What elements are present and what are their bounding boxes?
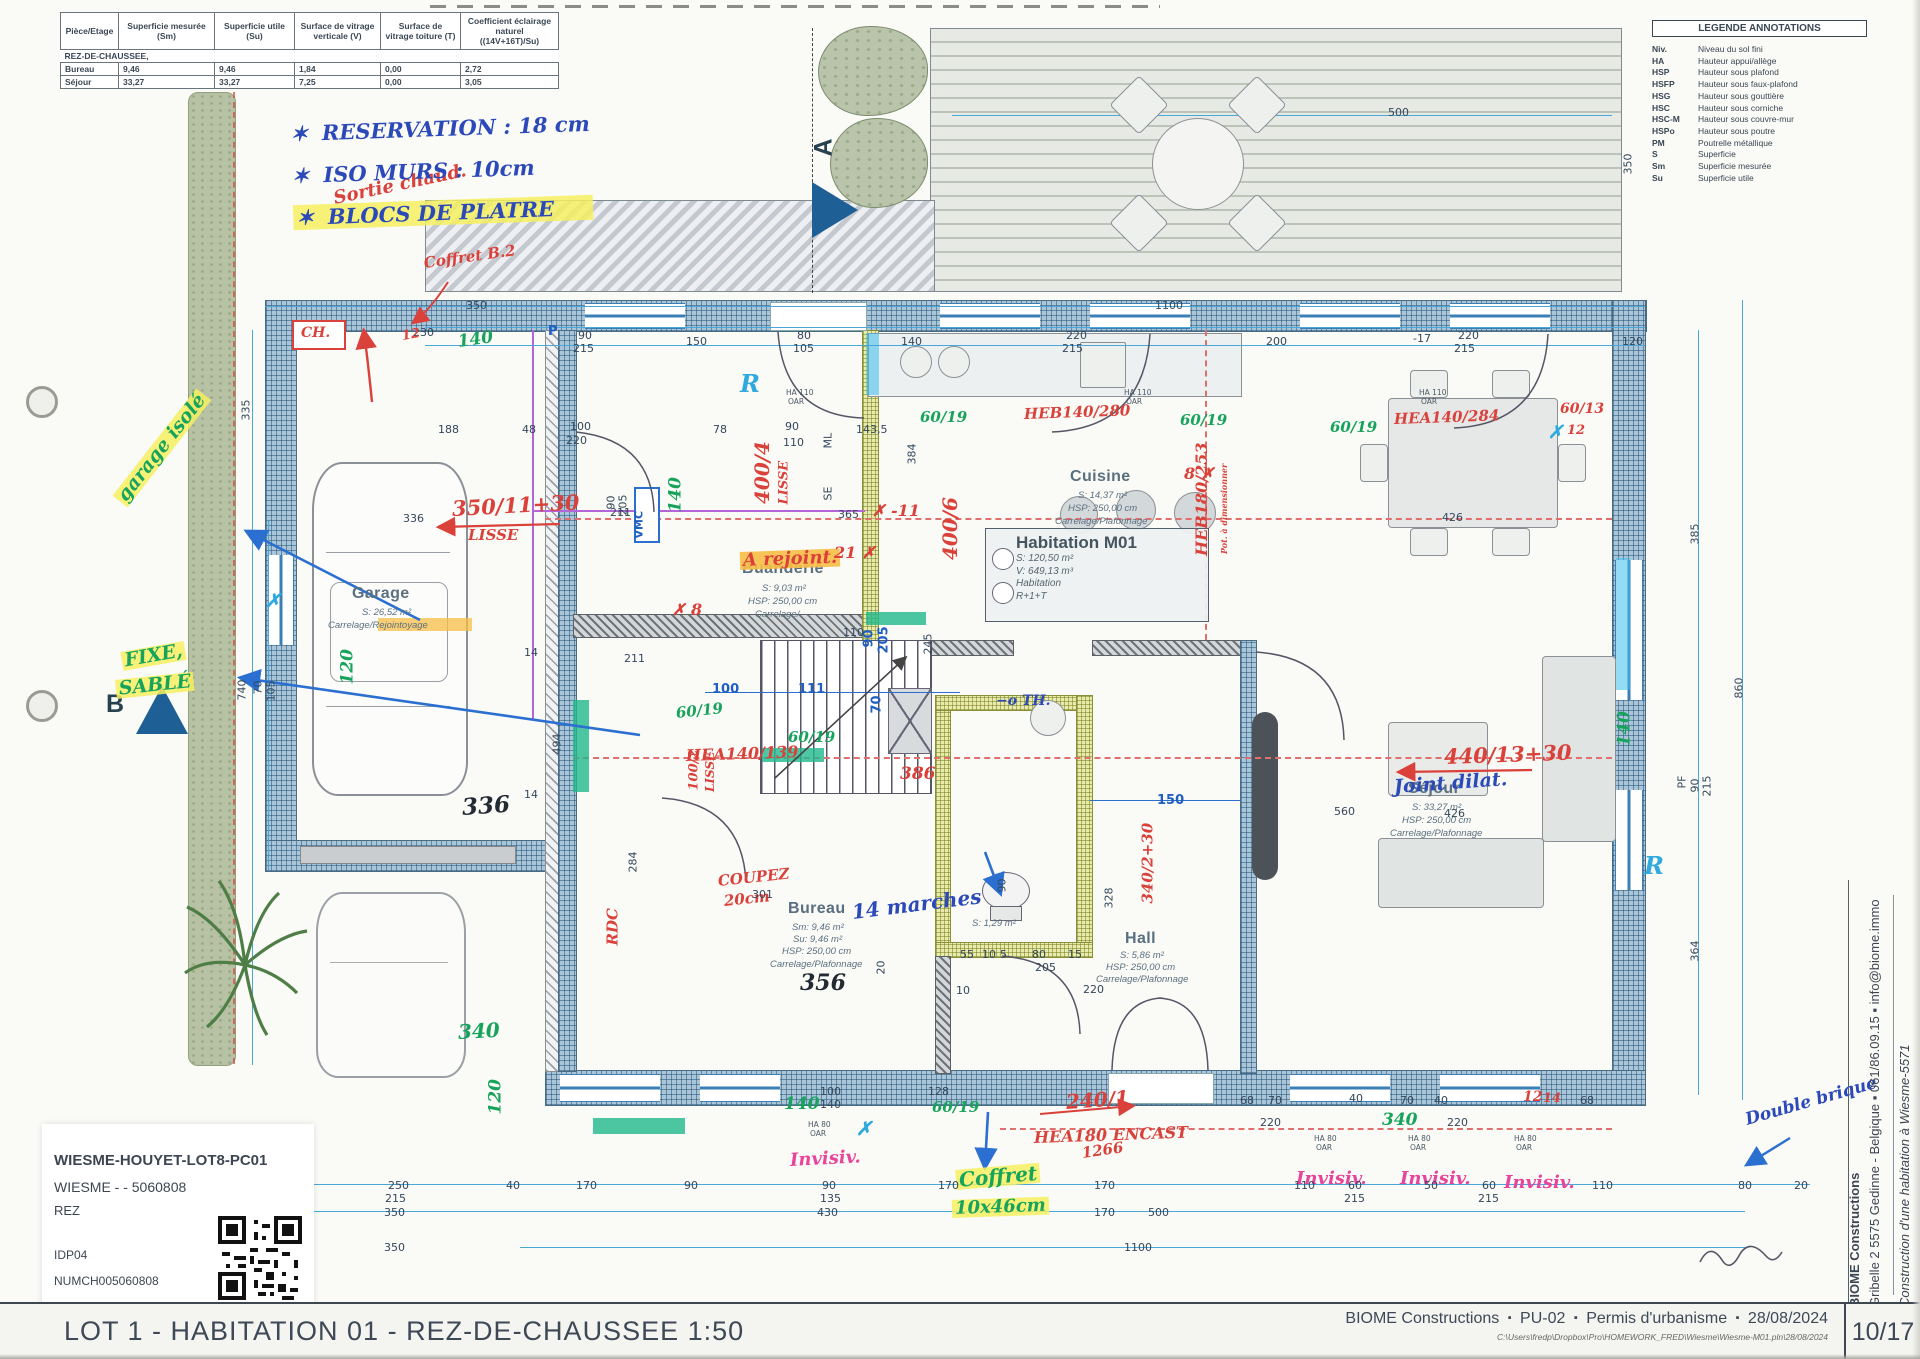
- plan-annotation: 440/13+30: [1444, 742, 1572, 767]
- plan-annotation: 301: [752, 888, 773, 901]
- plan-annotation: HSP: 250,00 cm: [1106, 962, 1175, 973]
- plan-annotation: 90: [684, 1179, 698, 1192]
- plan-annotation: 14: [524, 788, 538, 801]
- plan-annotation: 40: [1434, 1094, 1448, 1107]
- plan-annotation: 400/6: [940, 497, 960, 560]
- plan-annotation: 68: [1240, 1094, 1254, 1107]
- plan-annotation: VMC: [633, 511, 646, 539]
- plan-annotation: Double brique: [1744, 1075, 1879, 1129]
- scanned-floor-plan-sheet: A B Habitation M01 S: 120,50 m² V: 649,1…: [0, 0, 1920, 1359]
- plan-annotation: 426: [1444, 807, 1465, 820]
- plan-annotation: 20: [1794, 1179, 1808, 1192]
- plan-annotation: 400/4: [752, 441, 772, 504]
- plan-annotation: 12: [1523, 1090, 1542, 1104]
- plan-annotation: 170: [1094, 1179, 1115, 1192]
- drawing-reference: WIESME-HOUYET-LOT8-PC01: [54, 1152, 302, 1169]
- plan-annotation: 215: [385, 1192, 406, 1205]
- col-header: Superficie mesurée (Sm): [119, 13, 215, 50]
- plan-annotation: 110: [1592, 1179, 1613, 1192]
- plan-annotation: CH.: [301, 326, 330, 340]
- plan-annotation: HA 80: [1408, 1134, 1431, 1143]
- plan-annotation: SE: [822, 487, 835, 501]
- plan-annotation: 40: [1349, 1092, 1363, 1105]
- footer-doc-type: Permis d'urbanisme: [1586, 1310, 1727, 1327]
- plan-annotation: 1100: [1155, 299, 1183, 312]
- plan-annotation: 120: [488, 1079, 505, 1115]
- legend-item: HSCHauteur sous corniche: [1652, 103, 1867, 115]
- plan-annotation: HSP: 250,00 cm: [1068, 503, 1137, 514]
- plan-annotation: 386: [900, 766, 936, 783]
- plan-annotation: 215: [1344, 1192, 1365, 1205]
- plan-annotation: 340: [1382, 1112, 1418, 1129]
- plan-annotation: 365: [838, 508, 859, 521]
- plan-annotation: ✗ -11: [872, 503, 920, 519]
- plan-annotation: 220: [1083, 983, 1104, 996]
- plan-annotation: 60/19: [1180, 413, 1227, 428]
- plan-annotation: -17: [1413, 332, 1431, 345]
- plan-annotation: 150: [1157, 793, 1184, 808]
- plan-annotation: COUPEZ: [717, 867, 790, 889]
- plan-annotation: 70: [252, 681, 265, 695]
- plan-annotation: 60/13: [1560, 402, 1604, 416]
- page-number: 10/17: [1844, 1304, 1920, 1359]
- table-row: Séjour33,2733,27 7,250,003,05: [61, 76, 559, 89]
- plan-annotation: 220: [1260, 1116, 1281, 1129]
- legend-item: SuSuperficie utile: [1652, 173, 1867, 185]
- plan-annotation: 215: [1454, 342, 1475, 355]
- legend-item: HSFPHauteur sous faux-plafond: [1652, 79, 1867, 91]
- plan-annotation: 220: [1066, 329, 1087, 342]
- plan-annotation: 220: [1447, 1116, 1468, 1129]
- scan-edge: [0, 1354, 1920, 1359]
- plan-annotation: 860: [1733, 678, 1746, 699]
- table-row: Bureau9,469,46 1,840,002,72: [61, 63, 559, 76]
- plan-annotation: 14: [524, 646, 538, 659]
- plan-annotation: OAR: [1516, 1143, 1532, 1152]
- plan-annotation: 40: [506, 1179, 520, 1192]
- plan-annotation: 211: [624, 652, 645, 665]
- plan-annotation: 364: [1689, 941, 1702, 962]
- plan-annotation: 120: [1622, 335, 1643, 348]
- table-group-row: REZ-DE-CHAUSSEE,: [61, 50, 559, 63]
- plan-annotation: 48: [522, 423, 536, 436]
- plan-annotation: 500: [1388, 106, 1409, 119]
- plan-annotation: HSP: 250,00 cm: [782, 946, 851, 957]
- handwritten-notes: ✶RESERVATION : 18 cm ✶ISO MURS : 10cm ✶B…: [290, 111, 594, 247]
- footer-date: 28/08/2024: [1748, 1310, 1828, 1327]
- footer-bar: LOT 1 - HABITATION 01 - REZ-DE-CHAUSSEE …: [0, 1302, 1920, 1359]
- plan-annotation: S: 5,86 m²: [1120, 950, 1164, 961]
- plan-annotation: Sm: 9,46 m²: [792, 922, 844, 933]
- plan-annotation: 105: [793, 342, 814, 355]
- plan-annotation: LISSE: [468, 528, 518, 543]
- plan-annotation: 140: [820, 1098, 841, 1111]
- plan-annotation: 120: [340, 649, 357, 685]
- plan-annotation: 60/19: [920, 410, 967, 425]
- plan-annotation: ML: [822, 433, 835, 449]
- plan-annotation: FIXE,: [120, 641, 187, 671]
- plan-annotation: Coffret B.2: [423, 243, 516, 271]
- plan-annotation: 494: [551, 734, 564, 755]
- plan-annotation: HA 80: [1514, 1134, 1537, 1143]
- plan-annotation: 205: [1035, 961, 1056, 974]
- plan-annotation: Coffret: [955, 1163, 1041, 1190]
- legend-item: HSC-MHauteur sous couvre-mur: [1652, 114, 1867, 126]
- plan-annotation: −o TH.: [996, 694, 1050, 708]
- table-header-row: Pièce/Etage Superficie mesurée (Sm) Supe…: [61, 13, 559, 50]
- plan-annotation: OAR: [1410, 1143, 1426, 1152]
- plan-annotation: 10: [956, 984, 970, 997]
- plan-annotation: 430: [817, 1206, 838, 1219]
- plan-annotation: 205: [617, 495, 630, 516]
- plan-annotation: 21 ✗: [834, 545, 875, 561]
- col-header: Coefficient éclairage naturel ((14V+16T)…: [461, 13, 559, 50]
- plan-annotation: 336: [461, 793, 511, 819]
- plan-annotation: 70: [1400, 1094, 1414, 1107]
- title-block: WIESME-HOUYET-LOT8-PC01 WIESME - - 50608…: [42, 1124, 314, 1310]
- legend-item: SSuperficie: [1652, 149, 1867, 161]
- plan-annotation: 60: [1482, 1179, 1496, 1192]
- plan-annotation: Carrelage/Plafonnage: [1390, 828, 1482, 839]
- plan-annotation: Bureau: [788, 900, 846, 918]
- plan-annotation: OAR: [1421, 397, 1437, 406]
- plan-annotation: OAR: [1316, 1143, 1332, 1152]
- plan-annotation: 14 marches: [851, 886, 983, 922]
- plan-annotation: HEB180/253: [1194, 443, 1210, 556]
- plan-annotation: 100: [712, 682, 739, 697]
- plan-annotation: 240/1: [1065, 1088, 1129, 1112]
- plan-annotation: 5: [1000, 948, 1007, 961]
- project-code: WIESME - - 5060808: [54, 1179, 302, 1195]
- plan-annotation: OAR: [810, 1129, 826, 1138]
- col-header: Pièce/Etage: [61, 13, 119, 50]
- plan-annotation: 328: [1103, 888, 1116, 909]
- plan-annotation: 50: [1424, 1179, 1438, 1192]
- plan-annotation: ✗ 8: [672, 602, 702, 618]
- plan-annotation: 384: [906, 444, 919, 465]
- plan-annotation: 68: [1580, 1094, 1594, 1107]
- plan-annotation: Pot. à dimensionner: [1220, 464, 1228, 554]
- plan-annotation: Invisiv.: [1504, 1174, 1575, 1192]
- plan-annotation: 100: [570, 420, 591, 433]
- plan-annotation: 215: [1062, 342, 1083, 355]
- plan-annotation: 205: [877, 626, 892, 653]
- footer-doc-code: PU-02: [1520, 1310, 1565, 1327]
- plan-annotation: 150: [686, 335, 707, 348]
- plan-annotation: P: [548, 324, 558, 339]
- plan-annotation: 100/2: [688, 750, 701, 791]
- legend-item: HSGHauteur sous gouttière: [1652, 91, 1867, 103]
- surface-area-table: Pièce/Etage Superficie mesurée (Sm) Supe…: [60, 12, 559, 89]
- side-address: Gribelle 2 5575 Gedinne - Belgique ▪ 061…: [1867, 899, 1882, 1307]
- plan-annotation: HA 110: [786, 388, 813, 397]
- plan-annotation: 70: [1268, 1094, 1282, 1107]
- plan-annotation: Invisiv.: [790, 1148, 862, 1170]
- side-project: Construction d'une habitation à Wiesme-5…: [1897, 1044, 1912, 1307]
- plan-annotation: 100: [820, 1085, 841, 1098]
- plan-annotation: Su: 9,46 m²: [793, 934, 842, 945]
- plan-annotation: 1266: [1081, 1140, 1124, 1161]
- plan-annotation: 170: [938, 1179, 959, 1192]
- plan-annotation: Carrelage/Plafonnage: [1055, 516, 1147, 527]
- plan-annotation: 15: [1068, 948, 1082, 961]
- plan-annotation: HEB140/280: [1024, 403, 1131, 422]
- legend-item: SmSuperficie mesurée: [1652, 161, 1867, 173]
- plan-annotation: 220: [566, 434, 587, 447]
- plan-annotation: Carrelage/Plafonnage: [770, 959, 862, 970]
- plan-annotation: Joint dilat.: [1393, 770, 1508, 797]
- plan-annotation: 500: [1148, 1206, 1169, 1219]
- plan-annotation: 80: [1032, 948, 1046, 961]
- plan-annotation: 110: [783, 436, 804, 449]
- plan-annotation: 385: [1689, 524, 1702, 545]
- plan-annotation: 20: [875, 961, 888, 975]
- plan-annotation: 170: [1094, 1206, 1115, 1219]
- plan-annotation: 215: [573, 342, 594, 355]
- plan-annotation: 14: [1543, 1092, 1561, 1105]
- side-rule: [1893, 895, 1894, 1295]
- plan-annotation: 10: [982, 948, 996, 961]
- plan-annotation: 60/19: [675, 701, 724, 721]
- plan-annotation: HA 110: [1419, 388, 1446, 397]
- sheet-title: LOT 1 - HABITATION 01 - REZ-DE-CHAUSSEE …: [64, 1316, 744, 1347]
- plan-annotation: HA 110: [1124, 388, 1151, 397]
- plan-annotation: SABLÉ: [115, 672, 195, 699]
- plan-annotation: 140: [457, 329, 495, 351]
- plan-annotation: 170: [576, 1179, 597, 1192]
- plan-annotation: 350: [384, 1241, 405, 1254]
- plan-annotation: 335: [240, 400, 253, 421]
- plan-annotation: 78: [713, 423, 727, 436]
- plan-annotation: Carrelage/Plafonnage: [1096, 974, 1188, 985]
- plan-annotation: Cuisine: [1070, 468, 1131, 486]
- plan-annotation: A rejoint.: [740, 549, 841, 570]
- plan-annotation: 70: [870, 695, 885, 713]
- legend-item: HSPHauteur sous plafond: [1652, 67, 1867, 79]
- plan-annotation: 90: [996, 879, 1009, 893]
- plan-annotation: ✗: [1548, 424, 1563, 442]
- plan-annotation: 10x46cm: [952, 1197, 1049, 1218]
- plan-annotation: 284: [627, 852, 640, 873]
- plan-annotation: R: [1644, 854, 1664, 878]
- plan-annotation: PF: [1676, 776, 1689, 789]
- handwritten-note: ✶BLOCS DE PLATRE: [293, 195, 593, 230]
- legend-item: HSPoHauteur sous poutre: [1652, 126, 1867, 138]
- plan-annotation: 128: [928, 1085, 949, 1098]
- plan-annotation: R: [740, 372, 760, 396]
- plan-annotation: 12: [401, 327, 421, 343]
- legend-annotations: LEGENDE ANNOTATIONS Niv.Niveau du sol fi…: [1652, 20, 1867, 185]
- handwritten-note: ✶ISO MURS : 10cm: [291, 153, 591, 188]
- separator-icon: ▪: [1732, 1312, 1744, 1324]
- plan-annotation: S: 26,52 m²: [362, 607, 411, 618]
- plan-annotation: 188: [438, 423, 459, 436]
- plan-annotation: 140: [784, 1096, 820, 1113]
- plan-annotation: 80: [797, 329, 811, 342]
- col-header: Superficie utile (Su): [215, 13, 295, 50]
- col-header: Surface de vitrage toiture (T): [381, 13, 461, 50]
- plan-annotation: 90: [822, 1179, 836, 1192]
- plan-annotation: 350: [466, 299, 487, 312]
- plan-annotation: 340/2+30: [1141, 823, 1156, 904]
- plan-annotation: 350/11+30: [451, 491, 579, 519]
- plan-annotation: HSP: 250,00 cm: [748, 596, 817, 607]
- plan-annotation: OAR: [788, 397, 804, 406]
- plan-annotation: Hall: [1125, 930, 1156, 948]
- footer-file-path: C:\Users\fredp\Dropbox\Pro\HOMEWORK_FRED…: [1345, 1332, 1828, 1342]
- plan-annotation: HA 80: [808, 1120, 831, 1129]
- plan-annotation: 140: [1617, 711, 1634, 747]
- plan-annotation: Carrelage/: [755, 609, 799, 620]
- plan-annotation: ✗: [265, 592, 281, 611]
- plan-annotation: 350: [1622, 154, 1635, 175]
- plan-annotation: 90: [578, 329, 592, 342]
- plan-annotation: 200: [1266, 335, 1287, 348]
- plan-annotation: 245: [922, 634, 935, 655]
- plan-annotation: 110: [1294, 1179, 1315, 1192]
- plan-annotation: 60/19: [932, 1100, 979, 1115]
- footer-meta: BIOME Constructions ▪ PU-02 ▪ Permis d'u…: [1345, 1310, 1828, 1342]
- plan-annotation: 80: [1738, 1179, 1752, 1192]
- plan-annotation: LISSE: [704, 752, 716, 792]
- plan-annotation: 1100: [1124, 1241, 1152, 1254]
- legend-item: PMPoutrelle métallique: [1652, 138, 1867, 150]
- footer-publisher: BIOME Constructions: [1345, 1310, 1499, 1327]
- plan-annotation: 140: [901, 335, 922, 348]
- plan-annotation: Carrelage/Rejointoyage: [328, 620, 428, 631]
- legend-title: LEGENDE ANNOTATIONS: [1652, 20, 1867, 37]
- plan-annotation: 135: [820, 1192, 841, 1205]
- plan-annotation: 350: [384, 1206, 405, 1219]
- qr-code: [218, 1216, 302, 1300]
- separator-icon: ▪: [1570, 1312, 1582, 1324]
- scan-edge: [1912, 0, 1920, 1359]
- plan-annotation: 336: [403, 512, 424, 525]
- plan-annotation: 110: [843, 626, 864, 639]
- plan-annotation: 143,5: [856, 423, 888, 436]
- plan-annotation: 250: [388, 1179, 409, 1192]
- plan-annotation: 12: [1567, 424, 1585, 437]
- plan-annotation: 356: [800, 972, 846, 994]
- plan-annotation: 560: [1334, 805, 1355, 818]
- plan-annotation: 220: [1458, 329, 1479, 342]
- separator-icon: ▪: [1504, 1312, 1516, 1324]
- plan-annotation: 90: [785, 420, 799, 433]
- plan-annotation: 215: [1478, 1192, 1499, 1205]
- legend-item: Niv.Niveau du sol fini: [1652, 44, 1867, 56]
- col-header: Surface de vitrage verticale (V): [295, 13, 381, 50]
- plan-annotation: S: 14,37 m²: [1078, 490, 1127, 501]
- plan-annotation: ✗: [856, 1120, 872, 1139]
- plan-annotation: garage isolé: [113, 389, 212, 508]
- plan-annotation: 60: [1348, 1179, 1362, 1192]
- side-company: BIOME Constructions: [1847, 1173, 1862, 1307]
- plan-annotation: 740: [236, 680, 249, 701]
- plan-annotation: 105: [265, 681, 278, 702]
- plan-annotation: 340: [457, 1020, 500, 1042]
- plan-annotation: S: 1,29 m²: [972, 918, 1016, 929]
- plan-annotation: 60/19: [1330, 420, 1377, 435]
- plan-annotation: 426: [1442, 511, 1463, 524]
- plan-annotation: HEA140/284: [1394, 408, 1500, 427]
- plan-annotation: HA 80: [1314, 1134, 1337, 1143]
- plan-annotation: S: 9,03 m²: [762, 583, 806, 594]
- plan-annotation: 55: [960, 948, 974, 961]
- plan-annotation: LISSE: [778, 461, 791, 505]
- legend-item: HAHauteur appui/allège: [1652, 56, 1867, 68]
- plan-annotation: 111: [798, 682, 825, 697]
- plan-annotation: RDC: [606, 908, 621, 945]
- plan-annotation: Garage: [352, 585, 410, 603]
- plan-annotation: 140: [668, 477, 685, 513]
- plan-annotation: 215: [1701, 776, 1714, 797]
